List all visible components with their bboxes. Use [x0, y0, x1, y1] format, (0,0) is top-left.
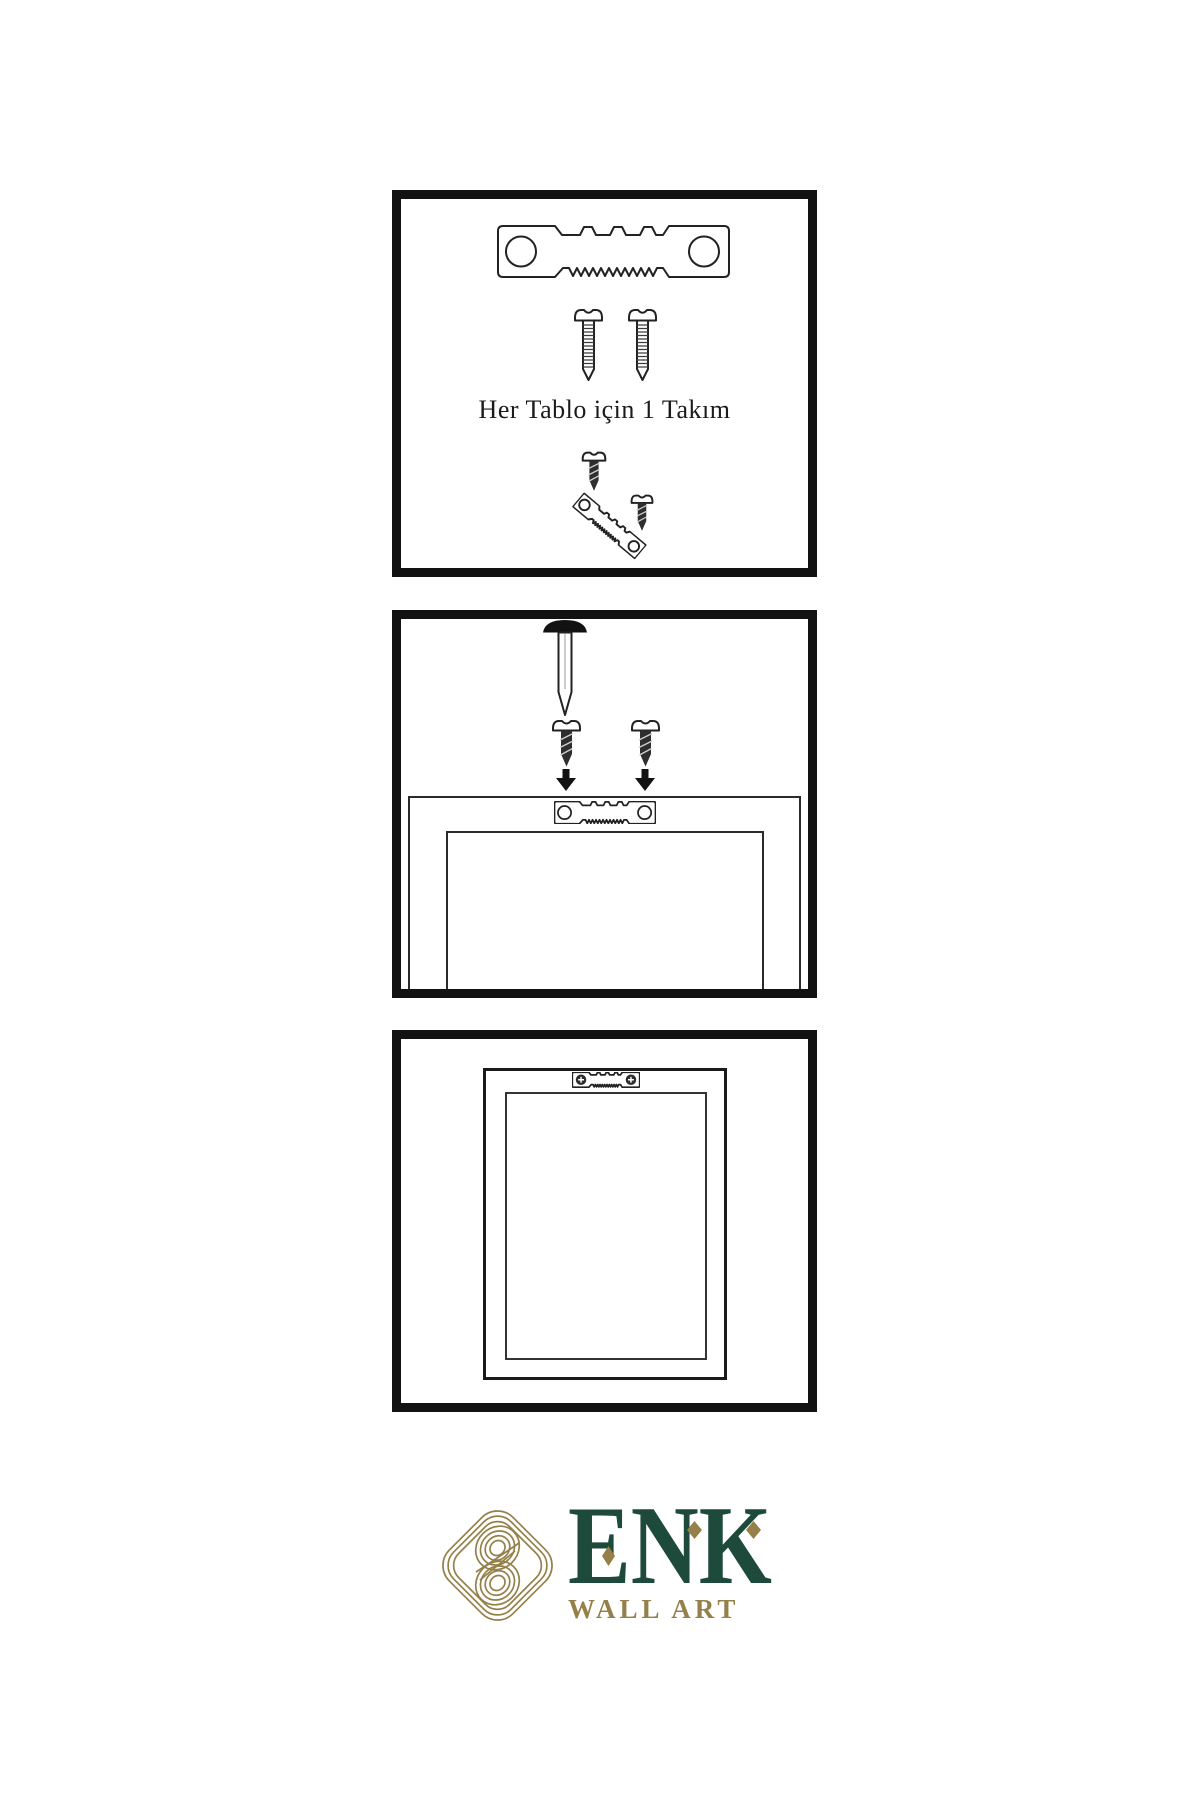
- installed-sawtooth-hanger-icon: [572, 1072, 640, 1088]
- dark-screw-icon: [581, 451, 607, 492]
- frame-front-artwork: [505, 1092, 707, 1360]
- knot-medallion-icon: [435, 1498, 560, 1633]
- panel-hung: [392, 1030, 817, 1412]
- frame-back-opening: [446, 831, 764, 989]
- wall-nail-icon: [542, 619, 588, 719]
- sawtooth-hanger-icon: [554, 801, 656, 824]
- sawtooth-hanger-icon: [497, 225, 730, 278]
- brand-name: ENK: [568, 1490, 772, 1602]
- brand-logo: ENK WALL ART: [435, 1498, 795, 1648]
- dark-screw-icon: [551, 719, 582, 768]
- panel-kit: Her Tablo için 1 Takım: [392, 190, 817, 577]
- kit-caption: Her Tablo için 1 Takım: [401, 395, 808, 425]
- brand-subtitle: WALL ART: [568, 1596, 739, 1623]
- dark-screw-icon: [630, 494, 654, 532]
- panel-mounting: [392, 610, 817, 998]
- screw-icon: [627, 308, 658, 381]
- screw-icon: [573, 308, 604, 381]
- instruction-sheet: Her Tablo için 1 Takım: [0, 0, 1200, 1800]
- dark-screw-icon: [630, 719, 661, 768]
- down-arrow-icon: [556, 769, 576, 791]
- down-arrow-icon: [635, 769, 655, 791]
